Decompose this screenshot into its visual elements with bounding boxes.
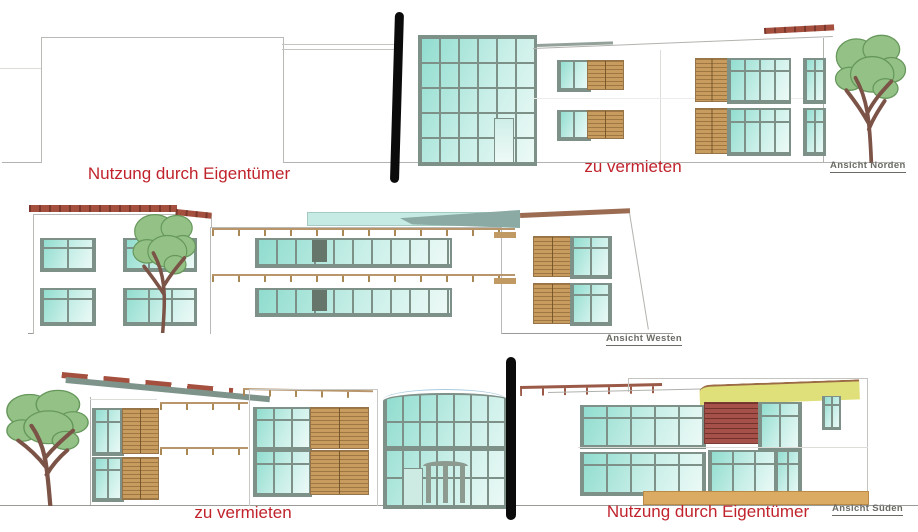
window-glass xyxy=(580,405,706,449)
tree xyxy=(833,30,908,163)
south-balcony-rail xyxy=(160,447,248,455)
north-caption: Ansicht Norden xyxy=(830,160,906,173)
atrium-floor-band xyxy=(384,446,506,449)
window-glass xyxy=(727,58,791,104)
dark-window-pane xyxy=(312,290,327,311)
window-louver xyxy=(695,58,729,102)
dark-window-pane xyxy=(312,240,327,262)
portico-column xyxy=(426,466,431,503)
window-glass xyxy=(570,283,612,326)
window-glass xyxy=(40,238,96,272)
window-glass xyxy=(580,452,706,496)
portico-column xyxy=(443,466,448,503)
window-glass xyxy=(253,450,312,497)
west-rail-end-block xyxy=(494,232,516,238)
south-owner-label: Nutzung durch Eigentümer xyxy=(593,502,823,522)
window-glass xyxy=(92,408,124,456)
elevation-drawing-sheet: Nutzung durch Eigentümer zu vermieten An… xyxy=(0,0,918,532)
south-right-building-top xyxy=(628,378,868,379)
window-louver xyxy=(310,450,369,495)
north-roof-step-line xyxy=(282,49,398,50)
window-glass xyxy=(557,60,591,92)
south-rent-label: zu vermieten xyxy=(183,503,303,523)
west-caption: Ansicht Westen xyxy=(606,333,682,346)
window-louver xyxy=(587,110,624,139)
west-rail-end-block xyxy=(494,278,516,284)
north-owner-label: Nutzung durch Eigentümer xyxy=(75,164,303,184)
window-glass xyxy=(92,457,124,502)
window-glass xyxy=(758,402,802,451)
south-entrance-door xyxy=(403,468,423,506)
window-glass xyxy=(40,288,96,326)
divider-bar xyxy=(506,357,516,520)
window-glass xyxy=(822,396,841,430)
north-roof-step-line xyxy=(282,44,398,45)
north-entrance-door xyxy=(494,118,514,163)
north-rent-label: zu vermieten xyxy=(568,157,698,177)
south-left-facade-top xyxy=(90,399,157,400)
tree xyxy=(130,208,200,333)
brick-panel xyxy=(704,402,760,444)
west-brise-soleil-lower xyxy=(212,274,515,282)
window-louver xyxy=(122,457,159,500)
south-right-building-edge xyxy=(867,378,868,505)
west-brise-soleil-upper xyxy=(212,228,515,236)
north-glass-curtain-wall xyxy=(418,35,537,166)
window-glass xyxy=(570,236,612,279)
west-right-roof-band xyxy=(520,208,630,218)
window-louver xyxy=(695,108,729,154)
window-glass xyxy=(803,108,826,156)
divider-bar xyxy=(390,12,404,183)
south-caption: Ansicht Süden xyxy=(832,503,903,516)
south-balcony-rail xyxy=(160,402,248,410)
north-facade-divider xyxy=(660,50,661,162)
window-louver xyxy=(587,60,624,90)
south-floor-line xyxy=(578,447,868,448)
south-left-facade-edge xyxy=(90,397,91,505)
portico-column xyxy=(460,466,465,503)
window-louver xyxy=(533,236,572,277)
window-louver xyxy=(310,407,369,449)
window-louver xyxy=(533,283,572,324)
west-ribbon-window-lower xyxy=(255,288,452,317)
window-glass xyxy=(557,110,591,141)
north-red-roof-band xyxy=(764,24,834,34)
west-right-slanted-edge xyxy=(629,213,649,330)
tree xyxy=(5,383,90,506)
window-glass xyxy=(727,108,791,156)
north-faint-line xyxy=(0,68,41,69)
window-glass xyxy=(253,407,312,451)
north-owner-building-outline xyxy=(41,37,284,163)
west-ribbon-window-upper xyxy=(255,238,452,268)
window-glass xyxy=(803,58,826,104)
window-louver xyxy=(122,408,159,454)
